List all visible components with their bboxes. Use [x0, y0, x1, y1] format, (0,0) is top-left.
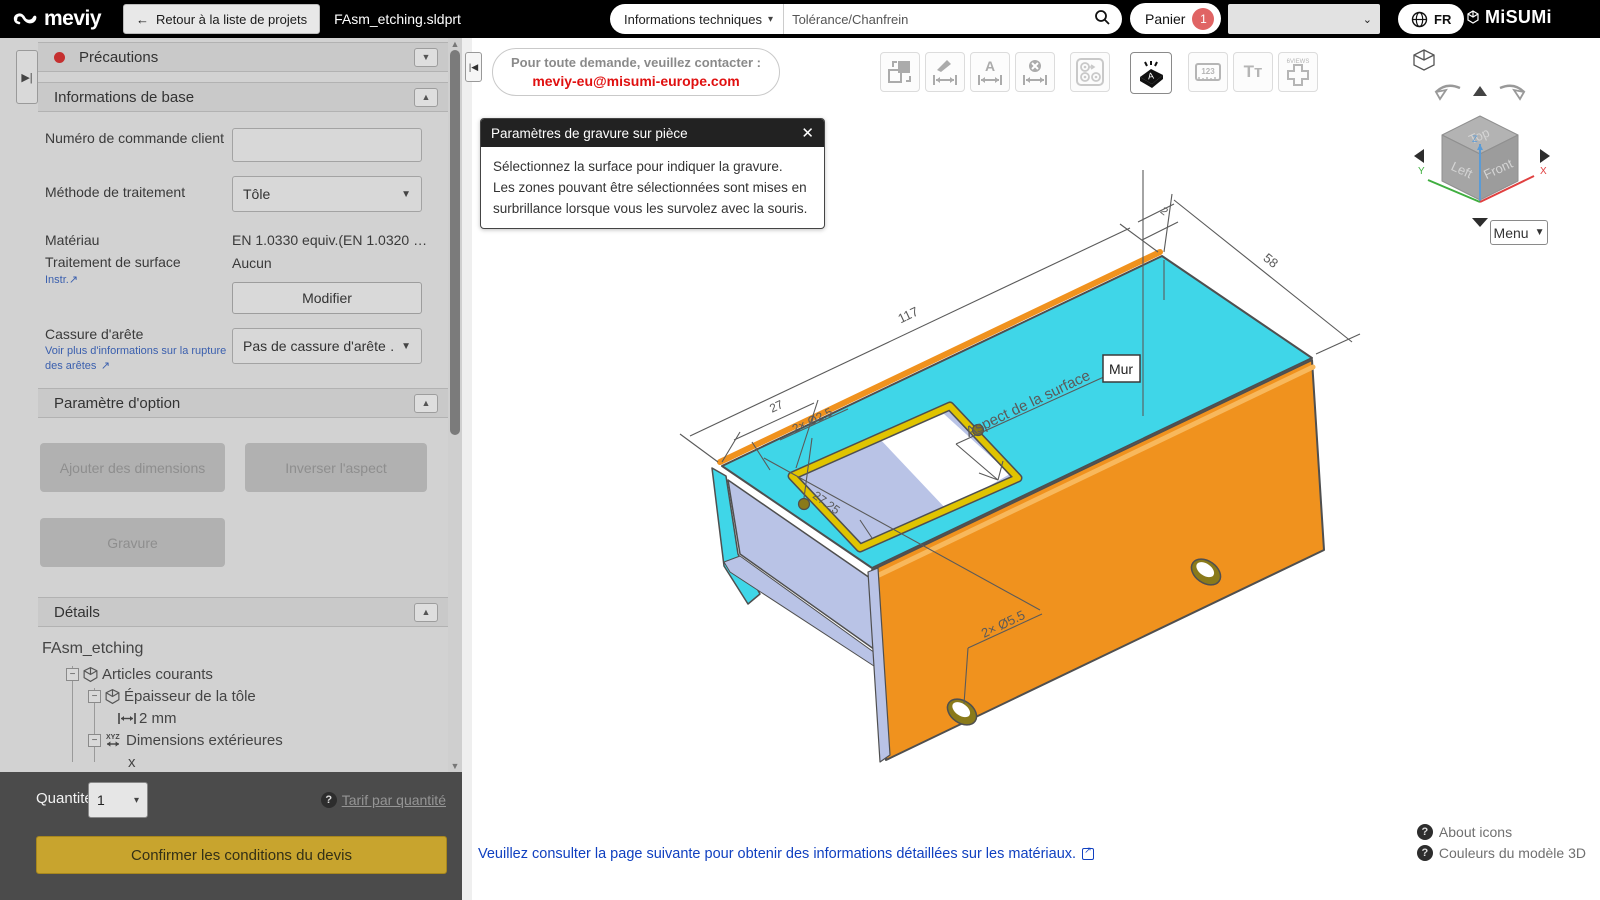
collapse-button[interactable]: ▲	[414, 603, 438, 622]
external-link-icon: ↗	[69, 274, 78, 286]
search-bar: Informations techniques ▾	[610, 4, 1122, 34]
engraving-tool-button[interactable]: A	[1130, 52, 1172, 94]
reorder-dimension-icon	[886, 58, 914, 86]
collapse-button[interactable]: ▲	[414, 394, 438, 413]
contact-line: Pour toute demande, veuillez contacter :	[511, 55, 761, 70]
option-params-title: Paramètre d'option	[54, 395, 414, 412]
instr-link[interactable]: Instr.↗	[45, 270, 78, 288]
cube-icon	[82, 666, 99, 683]
section-precautions[interactable]: Précautions ▼	[38, 42, 448, 72]
meviy-swirl-icon	[12, 10, 40, 28]
tree-item-ext-dimensions[interactable]: − XYZ Dimensions extérieures	[88, 732, 283, 749]
dim-thickness: 2	[1158, 205, 1170, 218]
tree-item-2mm[interactable]: 2 mm	[118, 710, 177, 727]
tilt-down-icon[interactable]	[1472, 218, 1488, 227]
section-option-params[interactable]: Paramètre d'option ▲	[38, 388, 448, 418]
search-input[interactable]	[784, 12, 1094, 27]
edit-dimension-button[interactable]	[925, 52, 965, 92]
dialog-text-line: surbrillance lorsque vous les survolez a…	[493, 198, 812, 219]
basic-info-title: Informations de base	[54, 89, 414, 106]
rotate-view-right-icon[interactable]	[1540, 149, 1550, 163]
wall-tag[interactable]: Mur	[1103, 355, 1140, 382]
treatment-method-label: Méthode de traitement	[45, 184, 230, 201]
question-icon: ?	[321, 792, 337, 808]
edge-break-info-link[interactable]: Voir plus d'informations sur la rupture …	[45, 343, 230, 373]
svg-text:A: A	[985, 58, 995, 74]
tree-item-thickness[interactable]: − Épaisseur de la tôle	[88, 688, 256, 705]
axis-x-label: X	[1540, 166, 1547, 177]
tree-item-label: x	[128, 754, 136, 771]
wall-tag-label: Mur	[1109, 361, 1133, 377]
edit-dimension-icon	[931, 58, 959, 86]
model-colors-label: Couleurs du modèle 3D	[1439, 845, 1586, 861]
rotate-view-left-icon[interactable]	[1414, 149, 1424, 163]
tree-item-label: Dimensions extérieures	[126, 732, 283, 749]
cart-count-badge: 1	[1192, 8, 1214, 30]
collapse-button[interactable]: ▲	[414, 88, 438, 107]
order-number-input[interactable]	[232, 128, 422, 162]
confirm-quote-button[interactable]: Confirmer les conditions du devis	[36, 836, 447, 874]
panel-collapse-handle[interactable]: |◀	[465, 52, 482, 82]
measure-123-icon: 123	[1193, 57, 1223, 87]
six-views-button[interactable]: 6VIEWS	[1278, 52, 1318, 92]
misumi-logo-text: MiSUMi	[1485, 7, 1552, 28]
edge-break-select[interactable]: Pas de cassure d'arête … ▼	[232, 328, 422, 364]
engraving-icon: A	[1135, 57, 1167, 89]
cart-label: Panier	[1145, 11, 1185, 27]
misumi-brand: MiSUMi	[1466, 7, 1552, 28]
materials-link-label: Veuillez consulter la page suivante pour…	[478, 846, 1076, 862]
scrollbar-thumb[interactable]	[450, 50, 460, 435]
dialog-text-line: Les zones pouvant être sélectionnées son…	[493, 177, 812, 198]
globe-icon	[1411, 11, 1428, 28]
sidebar-collapse-handle[interactable]: ▶|	[16, 50, 38, 104]
search-category-dropdown[interactable]: Informations techniques ▾	[610, 4, 784, 34]
edge-break-value: Pas de cassure d'arête …	[243, 338, 393, 354]
chevron-down-icon: ▾	[768, 14, 773, 25]
alert-dot-icon	[54, 52, 65, 63]
chevron-down-icon: ▼	[401, 189, 411, 200]
chevron-down-icon: ⌄	[1363, 13, 1372, 26]
width-dimension-icon	[118, 712, 136, 725]
surface-treatment-value: Aucun	[232, 255, 432, 271]
order-number-label: Numéro de commande client	[45, 130, 230, 147]
close-icon[interactable]: ✕	[801, 124, 814, 142]
contact-banner: Pour toute demande, veuillez contacter :…	[492, 48, 780, 96]
reorder-dimension-button[interactable]	[880, 52, 920, 92]
edge-break-label: Cassure d'arête	[45, 326, 230, 343]
dim-width: 58	[1260, 250, 1281, 271]
dim-cutout-offset: 27	[767, 397, 785, 416]
modify-button[interactable]: Modifier	[232, 282, 422, 314]
delete-dimension-button[interactable]	[1015, 52, 1055, 92]
quantity-select[interactable]: 1 ▾	[88, 782, 148, 818]
scroll-up-icon[interactable]: ▲	[448, 39, 462, 49]
six-views-icon: 6VIEWS	[1282, 56, 1314, 88]
tree-root[interactable]: FAsm_etching	[42, 640, 143, 658]
text-size-icon: Tт	[1244, 62, 1263, 82]
tree-item-x[interactable]: x	[128, 754, 136, 771]
viewport-3d[interactable]: |◀	[462, 38, 1600, 900]
axis-z-label: Z	[1472, 134, 1478, 144]
section-basic-info[interactable]: Informations de base ▲	[38, 82, 448, 112]
text-dimension-button[interactable]: A	[970, 52, 1010, 92]
back-arrow-icon: ←	[136, 12, 149, 27]
dim-length: 117	[895, 304, 920, 326]
file-title: FAsm_etching.sldprt	[334, 11, 461, 27]
dialog-title: Paramètres de gravure sur pièce	[491, 126, 688, 141]
chevron-down-icon: ▼	[1535, 227, 1545, 238]
invert-aspect-button[interactable]: Inverser l'aspect	[245, 443, 427, 492]
engraving-dialog: Paramètres de gravure sur pièce ✕ Sélect…	[480, 118, 825, 229]
hole-pattern-button[interactable]	[1070, 52, 1110, 92]
about-icons-label: About icons	[1439, 824, 1512, 840]
tree-item-articles[interactable]: − Articles courants	[66, 666, 213, 683]
tilt-up-icon[interactable]	[1473, 86, 1487, 96]
question-icon: ?	[1417, 824, 1433, 840]
quantity-value: 1	[97, 792, 105, 808]
help-links: ? About icons ? Couleurs du modèle 3D	[1417, 824, 1586, 861]
materials-info-link[interactable]: Veuillez consulter la page suivante pour…	[478, 846, 1094, 862]
external-link-icon	[1082, 848, 1094, 860]
section-details[interactable]: Détails ▲	[38, 597, 448, 627]
scroll-down-icon[interactable]: ▼	[448, 761, 462, 771]
chevron-down-icon: ▾	[134, 795, 139, 806]
surface-treatment-label: Traitement de surface	[45, 254, 230, 271]
language-button[interactable]: FR	[1398, 4, 1464, 34]
tree-item-label: Épaisseur de la tôle	[124, 688, 256, 705]
text-size-button[interactable]: Tт	[1233, 52, 1273, 92]
tree-item-label: 2 mm	[139, 710, 177, 727]
cube-icon	[104, 688, 121, 705]
tree-collapse-icon[interactable]: −	[66, 668, 79, 681]
search-category-label: Informations techniques	[624, 12, 762, 27]
measure-123-button[interactable]: 123	[1188, 52, 1228, 92]
axis-y-label: Y	[1418, 166, 1425, 177]
language-label: FR	[1434, 12, 1451, 27]
cube-outline-icon[interactable]	[1414, 50, 1434, 70]
precautions-title: Précautions	[79, 49, 414, 66]
meviy-logo[interactable]: meviy	[12, 7, 101, 31]
project-dropdown[interactable]: ⌄	[1228, 4, 1380, 34]
svg-text:XYZ: XYZ	[106, 734, 120, 741]
delete-dimension-icon	[1021, 58, 1049, 86]
collapse-button[interactable]: ▼	[414, 48, 438, 67]
contact-email-link[interactable]: meviy-eu@misumi-europe.com	[532, 73, 739, 89]
add-dimensions-button[interactable]: Ajouter des dimensions	[40, 443, 225, 492]
view-menu-button[interactable]: Menu ▼	[1490, 220, 1548, 245]
misumi-mark-icon	[1466, 10, 1480, 26]
tree-collapse-icon[interactable]: −	[88, 690, 101, 703]
question-icon: ?	[1417, 845, 1433, 861]
text-dimension-icon: A	[976, 58, 1004, 86]
external-link-icon: ↗	[101, 360, 110, 372]
top-bar: meviy ← Retour à la liste de projets FAs…	[0, 0, 1600, 38]
about-icons-link[interactable]: ? About icons	[1417, 824, 1512, 840]
treatment-method-select[interactable]: Tôle ▼	[232, 176, 422, 212]
tree-collapse-icon[interactable]: −	[88, 734, 101, 747]
material-value: EN 1.0330 equiv.(EN 1.0320 …	[232, 232, 432, 248]
xyz-dimension-icon: XYZ	[104, 732, 123, 749]
material-label: Matériau	[45, 232, 230, 249]
svg-text:123: 123	[1201, 67, 1215, 76]
sidebar-scrollbar[interactable]: ▲ ▼	[448, 38, 462, 772]
details-title: Détails	[54, 604, 414, 621]
view-menu-label: Menu	[1494, 225, 1529, 241]
hole-pattern-icon	[1075, 57, 1105, 87]
quantity-label: Quantité	[36, 790, 93, 807]
quote-footer: Quantité 1 ▾ ? Tarif par quantité Confir…	[0, 772, 462, 900]
search-icon[interactable]	[1094, 9, 1110, 29]
treatment-method-value: Tôle	[243, 186, 270, 202]
left-sidebar: ▶| Précautions ▼ Informations de base ▲ …	[0, 38, 462, 900]
rotate-left-icon[interactable]	[1436, 86, 1460, 99]
back-to-projects-button[interactable]: ← Retour à la liste de projets	[123, 4, 320, 34]
tree-item-label: Articles courants	[102, 666, 213, 683]
chevron-down-icon: ▼	[401, 341, 411, 352]
tariff-link-label: Tarif par quantité	[342, 792, 446, 808]
cart-button[interactable]: Panier 1	[1130, 3, 1221, 34]
logo-text: meviy	[44, 7, 101, 31]
rotate-right-icon[interactable]	[1500, 86, 1524, 99]
back-button-label: Retour à la liste de projets	[156, 12, 307, 27]
tariff-per-quantity-link[interactable]: ? Tarif par quantité	[321, 792, 446, 808]
model-colors-link[interactable]: ? Couleurs du modèle 3D	[1417, 845, 1586, 861]
dialog-text-line: Sélectionnez la surface pour indiquer la…	[493, 156, 812, 177]
engraving-button[interactable]: Gravure	[40, 518, 225, 567]
